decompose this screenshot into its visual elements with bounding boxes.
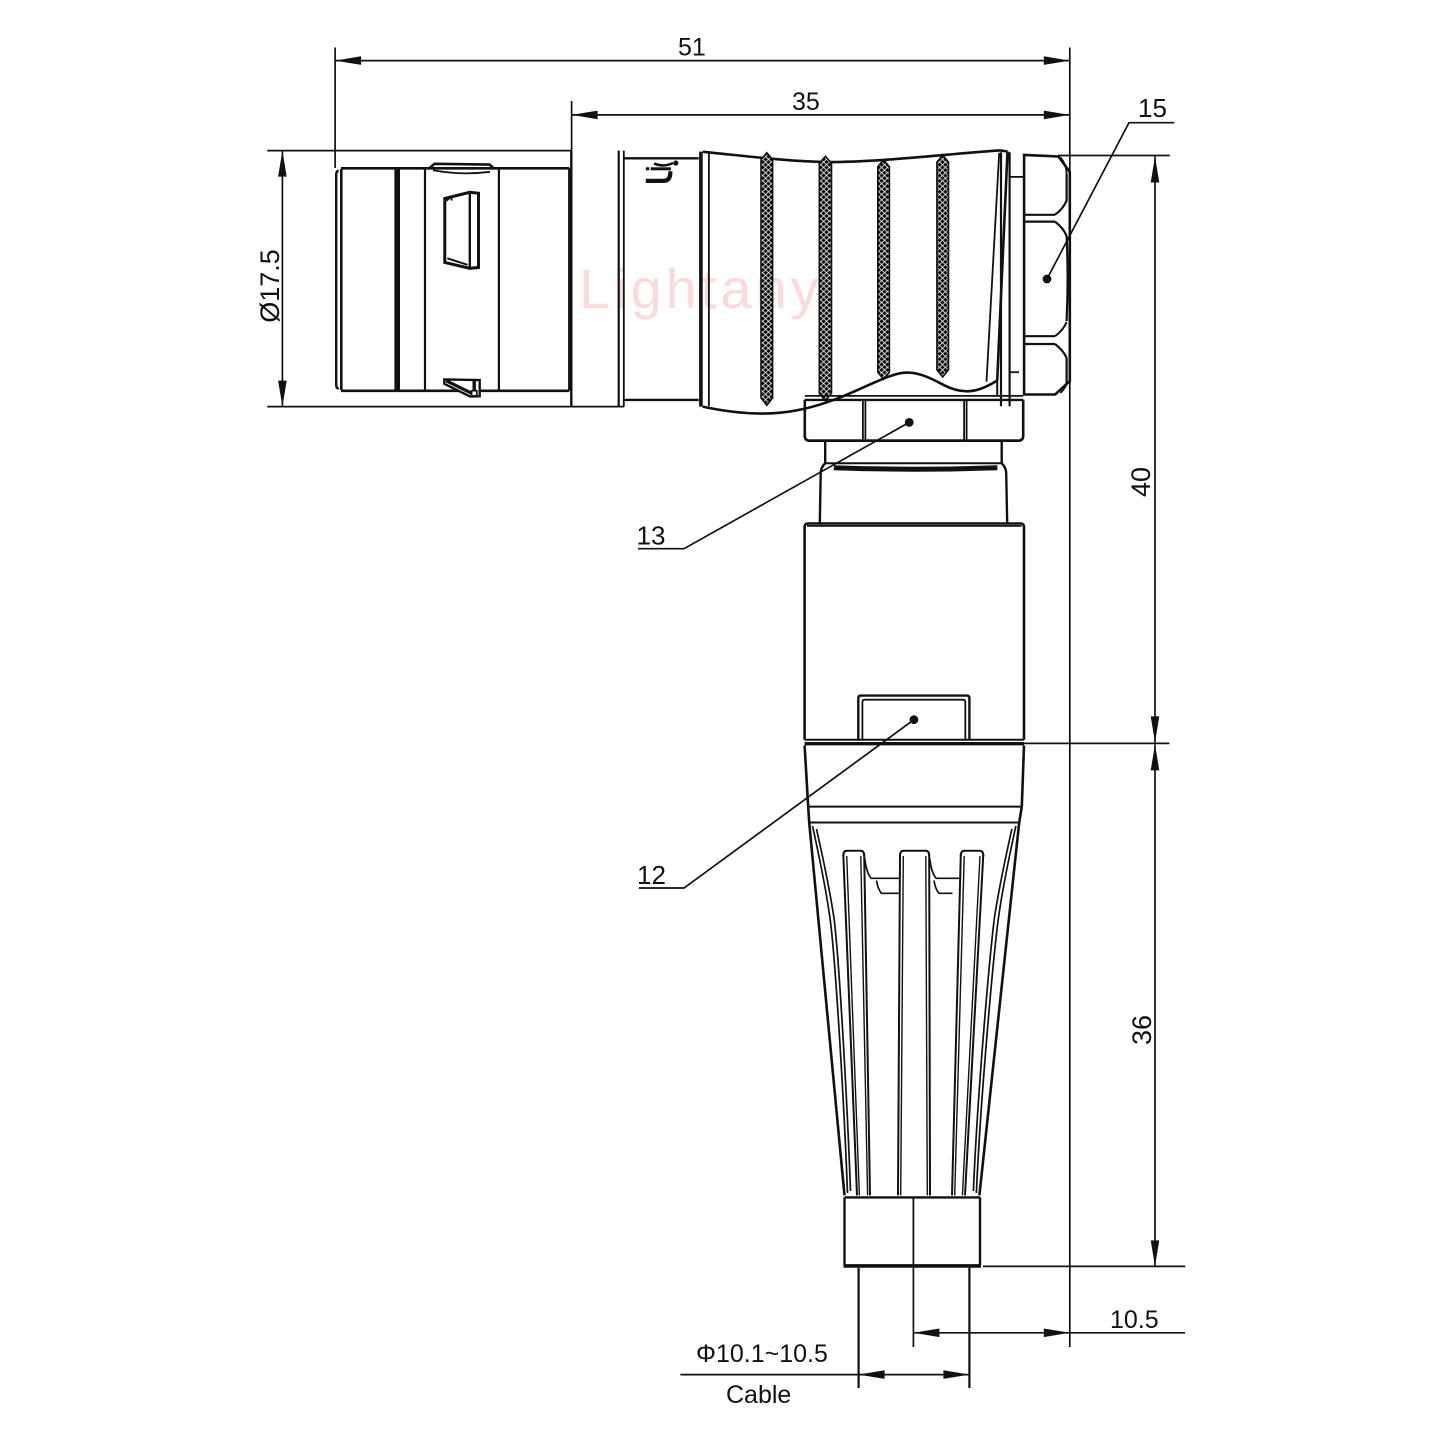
svg-text:51: 51 xyxy=(678,34,706,62)
svg-text:15: 15 xyxy=(1138,93,1167,123)
svg-text:40: 40 xyxy=(1126,467,1156,497)
svg-text:Ø17.5: Ø17.5 xyxy=(255,249,285,323)
svg-text:35: 35 xyxy=(792,88,820,116)
svg-text:Φ10.1~10.5: Φ10.1~10.5 xyxy=(696,1340,828,1368)
svg-text:Cable: Cable xyxy=(726,1381,791,1409)
svg-text:12: 12 xyxy=(637,860,666,890)
svg-text:13: 13 xyxy=(637,521,666,551)
svg-text:36: 36 xyxy=(1127,1015,1157,1045)
svg-text:10.5: 10.5 xyxy=(1110,1306,1159,1334)
